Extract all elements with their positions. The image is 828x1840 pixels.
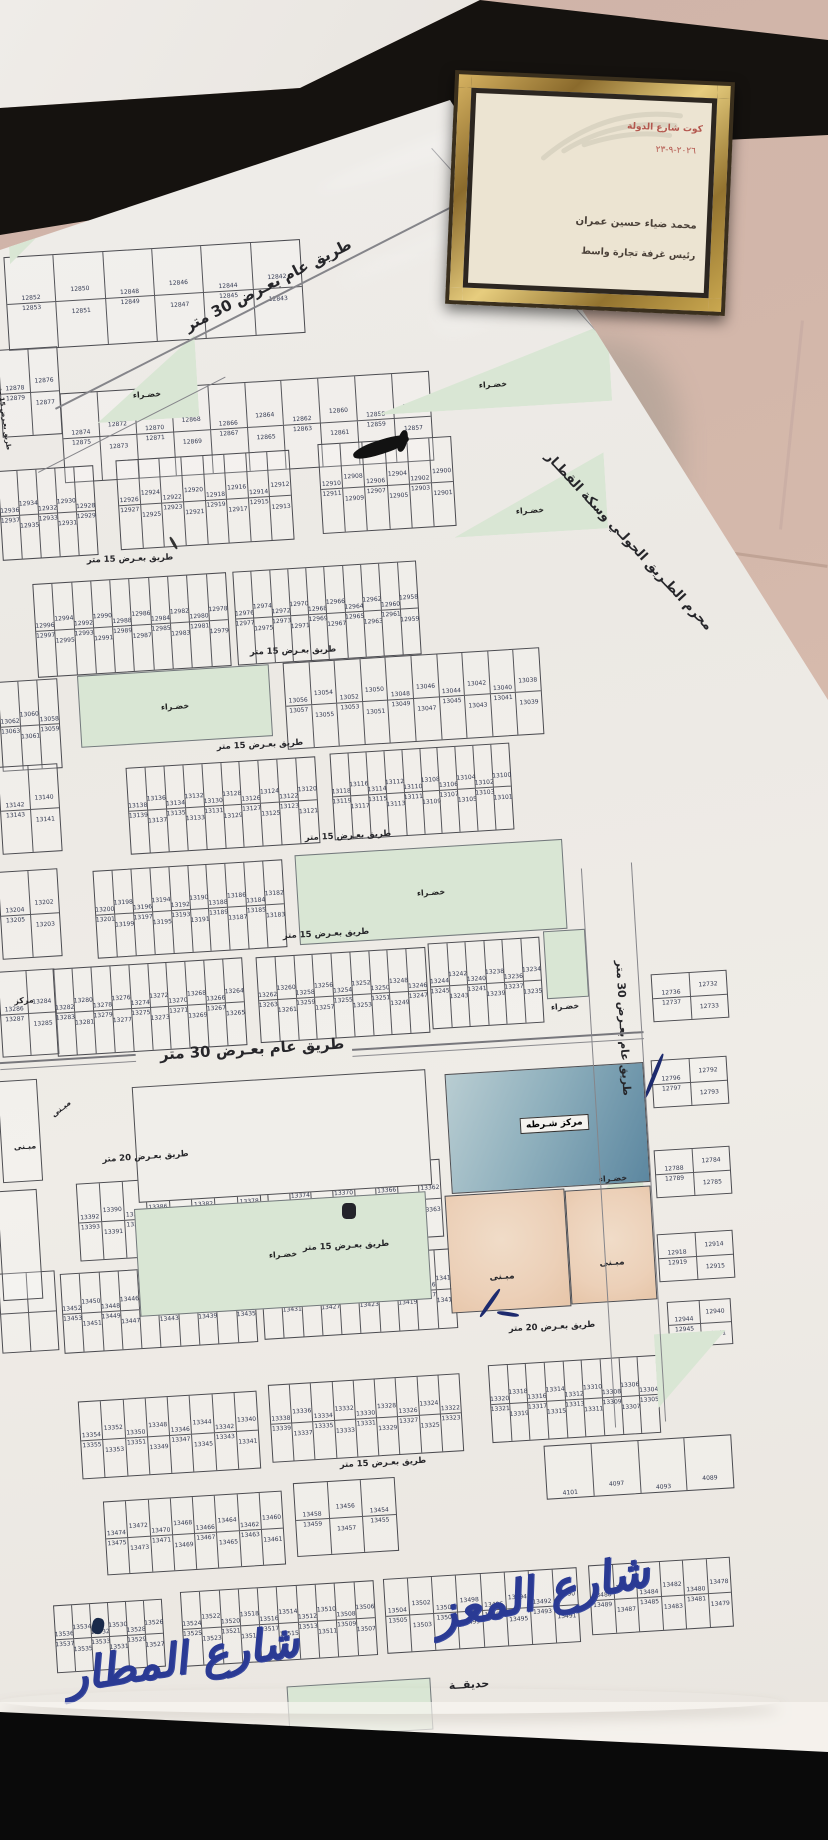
lot-number: 13110 xyxy=(403,783,422,791)
lot-number: 13133 xyxy=(186,814,205,822)
lot-cell: 12852 xyxy=(4,255,55,303)
lot-cell: 13341 xyxy=(236,1430,260,1469)
lot-cell: 12915 xyxy=(696,1254,735,1279)
lot-cell: 13248 xyxy=(387,949,408,992)
lot-number: 12927 xyxy=(120,506,139,514)
lot-cell: 13325 xyxy=(418,1414,441,1453)
lot-cell: 13329 xyxy=(376,1417,399,1456)
lot-number: 13246 xyxy=(408,981,427,989)
lot-number: 13101 xyxy=(493,793,512,801)
lot-number: 13506 xyxy=(355,1603,374,1611)
green-area: خضـراء xyxy=(134,1191,432,1317)
lot-number: 13468 xyxy=(173,1519,192,1527)
lot-number: 13311 xyxy=(584,1405,603,1413)
lot-number: 13055 xyxy=(315,711,334,719)
lot-number: 12969 xyxy=(308,614,327,622)
lot-cell: 13249 xyxy=(389,992,410,1035)
lot-number: 13100 xyxy=(492,772,511,780)
lot-number: 13040 xyxy=(493,684,512,692)
lot-cell: 13273 xyxy=(150,1006,171,1050)
lot-row: 1278912785 xyxy=(656,1169,731,1197)
lot-number: 12976 xyxy=(235,609,254,617)
lot-number: 13183 xyxy=(266,911,285,919)
lot-row: 1314313141 xyxy=(1,807,62,854)
lot-number: 12970 xyxy=(289,600,308,608)
lot-number: 13530 xyxy=(108,1620,127,1628)
lot-number: 13479 xyxy=(711,1599,730,1607)
lot-number: 12869 xyxy=(183,437,202,445)
lot-number: 13042 xyxy=(467,680,486,688)
lot-block-r8c: 1326213260132581325613254132521325013248… xyxy=(256,947,431,1043)
green-area-label: خضـراء xyxy=(417,887,446,898)
lot-number: 13242 xyxy=(448,970,467,978)
lot-cell: 13508 xyxy=(334,1582,355,1619)
lot-cell: 13334 xyxy=(310,1382,333,1421)
lot-number: 13313 xyxy=(565,1400,584,1408)
lot-number: 13043 xyxy=(468,701,487,709)
lot-number: 13235 xyxy=(523,987,542,995)
lot-number: 13502 xyxy=(411,1599,430,1607)
lot-number: 12928 xyxy=(76,502,95,510)
building-block xyxy=(445,1188,572,1313)
lot-number: 12852 xyxy=(21,293,40,301)
lot-cell: 13308 xyxy=(600,1358,621,1397)
lot-number: 13278 xyxy=(93,1001,112,1009)
lot-number: 13448 xyxy=(101,1302,120,1310)
lot-number: 13480 xyxy=(686,1585,705,1593)
lot-number: 13321 xyxy=(491,1404,510,1412)
lot-cell: 13141 xyxy=(30,808,62,852)
lot-number: 12958 xyxy=(399,593,418,601)
lot-cell: 13239 xyxy=(486,982,507,1025)
lot-cell: 13482 xyxy=(658,1561,684,1596)
lot-cell: 12940 xyxy=(698,1299,731,1322)
lot-number: 13054 xyxy=(314,689,333,697)
lot-cell: 13534 xyxy=(71,1604,91,1638)
lot-number: 12936 xyxy=(0,506,19,514)
lot-number: 13045 xyxy=(442,697,461,705)
lot-number: 12960 xyxy=(381,600,400,608)
lot-cell: 13125 xyxy=(260,803,281,846)
lot-cell: 4097 xyxy=(590,1441,640,1496)
lot-cell: 13345 xyxy=(191,1433,215,1472)
lot-cell: 13042 xyxy=(461,651,489,694)
lot-number: 13524 xyxy=(182,1620,201,1628)
lot-cell: 13039 xyxy=(515,691,543,734)
lot-number: 12784 xyxy=(701,1156,720,1164)
lot-number: 12864 xyxy=(255,411,274,419)
lot-number: 13191 xyxy=(190,915,209,923)
lot-number: 13130 xyxy=(204,797,223,805)
green-area-label: خضـراء xyxy=(679,1379,708,1390)
lot-number: 12877 xyxy=(36,398,55,406)
lot-cell: 13194 xyxy=(149,867,170,911)
lot-cell: 13046 xyxy=(410,655,438,698)
lot-cell: 12918 xyxy=(202,455,226,500)
lot-number: 13449 xyxy=(101,1312,120,1320)
lot-cell: 13307 xyxy=(621,1396,642,1435)
lot-cell: 13335 xyxy=(313,1420,336,1459)
lot-number: 13447 xyxy=(121,1317,140,1325)
lot-cell: 13464 xyxy=(214,1494,238,1531)
lot-number: 13143 xyxy=(6,811,25,819)
lot-number: 12871 xyxy=(146,434,165,442)
lot-number: 12850 xyxy=(70,284,89,292)
lot-number: 13487 xyxy=(617,1605,636,1613)
lot-number: 13471 xyxy=(152,1536,171,1544)
lot-cell: 13259 xyxy=(296,997,317,1040)
lot-number: 12935 xyxy=(20,521,39,529)
lot-row: 4101409740934089 xyxy=(545,1435,734,1498)
lot-number: 13135 xyxy=(166,809,185,817)
lot-number: 12934 xyxy=(19,499,38,507)
lot-block-m2: 12796127921279712793 xyxy=(651,1056,730,1109)
lot-cell: 13320 xyxy=(489,1365,509,1404)
lot-number: 13467 xyxy=(196,1533,215,1541)
lot-number: 13103 xyxy=(475,789,494,797)
lot-number: 12993 xyxy=(74,629,93,637)
lot-cell: 13235 xyxy=(522,980,543,1023)
lot-number: 13475 xyxy=(107,1539,126,1547)
lot-number: 13393 xyxy=(81,1223,100,1231)
lot-cell: 13503 xyxy=(409,1614,435,1651)
lot-cell: 13270 xyxy=(166,962,187,1006)
lot-number: 13234 xyxy=(522,965,541,973)
lot-cell: 13450 xyxy=(79,1273,101,1313)
lot-cell: 12846 xyxy=(151,246,203,294)
lot-number: 13526 xyxy=(144,1618,163,1626)
lot-number: 12915 xyxy=(706,1262,725,1270)
lot-number: 13474 xyxy=(107,1529,126,1537)
lot-number: 13328 xyxy=(377,1402,396,1410)
lot-number: 13192 xyxy=(171,901,190,909)
lot-cell: 12978 xyxy=(206,573,228,620)
lot-cell: 13246 xyxy=(406,948,427,991)
lot-cell: 12874 xyxy=(61,392,99,438)
lot-cell: 12788 xyxy=(655,1149,693,1174)
lot-number: 13344 xyxy=(192,1418,211,1426)
lot-cell: 13524 xyxy=(181,1592,201,1629)
lot-block-r3b: 1292612924129221292012918129161291412912… xyxy=(115,450,294,550)
lot-number: 13458 xyxy=(302,1510,321,1518)
lot-number: 12989 xyxy=(113,627,132,635)
lot-number: 13460 xyxy=(262,1513,281,1521)
lot-number: 12919 xyxy=(668,1258,687,1266)
lot-number: 12870 xyxy=(145,424,164,432)
lot-number: 13332 xyxy=(334,1404,353,1412)
lot-cell: 13460 xyxy=(258,1492,282,1529)
lot-cell: 12793 xyxy=(690,1080,729,1105)
lot-number: 13247 xyxy=(409,991,428,999)
lot-cell: 12934 xyxy=(16,470,38,515)
lot-number: 12961 xyxy=(381,610,400,618)
lot-cell: 13250 xyxy=(368,950,389,993)
lot-cell: 13050 xyxy=(359,658,387,701)
lot-number: 12851 xyxy=(72,306,91,314)
lot-number: 13456 xyxy=(336,1502,355,1510)
lot-number: 12920 xyxy=(184,486,203,494)
lot-number: 12996 xyxy=(35,621,54,629)
lot-number: 13283 xyxy=(56,1013,75,1021)
lot-number: 12981 xyxy=(190,622,209,630)
lot-cell: 13449 xyxy=(101,1311,123,1351)
lot-number: 13104 xyxy=(456,774,475,782)
lot-cell: 12866 xyxy=(207,383,246,429)
lot-cell: 13447 xyxy=(120,1310,142,1350)
lot-number: 12963 xyxy=(364,617,383,625)
lot-number: 13308 xyxy=(602,1388,621,1396)
lot-number: 13057 xyxy=(289,706,308,714)
lot-number: 12921 xyxy=(185,508,204,516)
lot-cell: 13473 xyxy=(127,1536,151,1573)
lot-number: 13039 xyxy=(519,698,538,706)
lot-number: 13390 xyxy=(103,1205,122,1213)
lot-number: 13451 xyxy=(82,1319,101,1327)
lot-number: 13462 xyxy=(240,1521,259,1529)
lot-cell: 13324 xyxy=(416,1376,439,1415)
lot-number: 13239 xyxy=(486,989,505,997)
lot-number: 13258 xyxy=(295,988,314,996)
lot-cell: 12848 xyxy=(102,249,154,297)
lot-cell: 13204 xyxy=(0,871,29,915)
lot-cell: 13142 xyxy=(0,766,29,810)
lot-number: 13129 xyxy=(223,812,242,820)
lot-number: 12915 xyxy=(250,498,269,506)
lot-number: 12862 xyxy=(292,415,311,423)
lot-number: 13046 xyxy=(416,683,435,691)
lot-cell: 12958 xyxy=(397,562,418,609)
lot-cell: 13481 xyxy=(684,1594,710,1629)
lot-cell: 13446 xyxy=(118,1270,140,1310)
lot-block-r6a: 1313813136131341313213130131281312613124… xyxy=(126,756,321,854)
lot-cell: 13513 xyxy=(298,1622,319,1659)
lot-cell: 13326 xyxy=(395,1377,418,1416)
lot-cell: 13455 xyxy=(362,1514,398,1551)
lot-cell: 13520 xyxy=(218,1589,239,1626)
lot-block-r7a: 1320013198131961319413192131901318813186… xyxy=(92,859,287,958)
lot-row: 129111290912907129051290312901 xyxy=(321,480,455,532)
lot-number: 12789 xyxy=(665,1174,684,1182)
lot-number: 13453 xyxy=(63,1314,82,1322)
lot-number: 13243 xyxy=(449,992,468,1000)
lot-block-m4: 12918129141291912915 xyxy=(657,1230,736,1283)
lot-number: 13251 xyxy=(371,994,390,1002)
lot-cell: 13352 xyxy=(100,1400,124,1439)
lot-number: 12911 xyxy=(322,489,341,497)
lot-cell: 12915 xyxy=(248,497,272,542)
lot-cell: 13047 xyxy=(413,697,441,740)
lot-number: 13354 xyxy=(82,1431,101,1439)
lot-number: 13508 xyxy=(336,1610,355,1618)
lot-number: 13461 xyxy=(263,1535,282,1543)
lot-cell: 13252 xyxy=(349,951,370,994)
small-ink-mark xyxy=(342,1203,356,1219)
lot-number: 13185 xyxy=(247,906,266,914)
lot-number: 13199 xyxy=(115,920,134,928)
lot-cell: 13451 xyxy=(81,1312,103,1352)
lot-number: 12980 xyxy=(189,612,208,620)
lot-number: 12847 xyxy=(170,300,189,308)
lot-cell: 12901 xyxy=(431,481,456,526)
lot-number: 13331 xyxy=(357,1419,376,1427)
lot-cell: 13321 xyxy=(491,1404,511,1443)
lot-cell: 12922 xyxy=(159,457,183,502)
lot-number: 12901 xyxy=(433,489,452,497)
lot-cell: 13132 xyxy=(182,764,203,807)
lot-cell: 13133 xyxy=(185,807,206,850)
lot-cell: 13316 xyxy=(525,1363,546,1402)
lot-cell: 13304 xyxy=(637,1356,658,1395)
lot-number: 13186 xyxy=(227,891,246,899)
lot-number: 12919 xyxy=(206,500,225,508)
lot-number: 12977 xyxy=(235,619,254,627)
lot-cell: 13054 xyxy=(308,661,336,704)
lot-cell: 13536 xyxy=(54,1605,73,1638)
lot-number: 13518 xyxy=(240,1610,259,1618)
lot-number: 13510 xyxy=(317,1606,336,1614)
lot-row: 1328613284 xyxy=(0,969,56,1014)
lot-block-r6b: 1311813116131141311213110131081310613104… xyxy=(330,743,515,841)
lot-number: 12879 xyxy=(6,394,25,402)
lot-cell: 13040 xyxy=(487,650,515,693)
lot-number: 12861 xyxy=(330,428,349,436)
lot-cell: 13281 xyxy=(74,1011,95,1055)
lot-cell: 13344 xyxy=(189,1394,213,1433)
lot-block-r5L: 130621306013058130631306113059 xyxy=(0,678,63,771)
lot-cell: 13041 xyxy=(490,693,518,736)
lot-cell: 13319 xyxy=(509,1402,530,1441)
lot-number: 13285 xyxy=(33,1019,52,1027)
lot-number: 13119 xyxy=(332,797,351,805)
lot-number: 13304 xyxy=(639,1385,658,1393)
lot-cell: 12912 xyxy=(267,451,291,496)
lot-cell: 12914 xyxy=(694,1231,733,1256)
lot-cell: 4101 xyxy=(545,1444,594,1499)
lot-cell: 12900 xyxy=(428,437,453,482)
lot-cell: 13285 xyxy=(28,1012,58,1055)
lot-cell: 12979 xyxy=(209,620,231,667)
lot-number: 13204 xyxy=(5,906,24,914)
lot-cell: 13310 xyxy=(581,1359,602,1398)
lot-block-b35b: 134581345613454134591345713455 xyxy=(293,1477,399,1557)
lot-number: 13236 xyxy=(504,972,523,980)
lot-number: 13253 xyxy=(353,1001,372,1009)
lot-row: 1328713285 xyxy=(1,1011,58,1057)
lot-number: 13318 xyxy=(508,1387,527,1395)
lot-number: 13194 xyxy=(151,896,170,904)
lot-block-m1: 12736127321273712733 xyxy=(651,970,730,1023)
lot-number: 12972 xyxy=(271,607,290,615)
lot-number: 12849 xyxy=(120,297,139,305)
lot-number: 13309 xyxy=(602,1398,621,1406)
lot-number: 13287 xyxy=(5,1015,24,1023)
lot-cell: 13458 xyxy=(294,1482,329,1519)
lot-cell: 13261 xyxy=(277,998,298,1041)
lot-cell: 13280 xyxy=(71,968,92,1012)
lot-number: 13142 xyxy=(5,801,24,809)
lot-cell: 13286 xyxy=(0,971,28,1014)
lot-cell: 13510 xyxy=(315,1584,336,1621)
lot-number: 12914 xyxy=(704,1240,723,1248)
lot-number: 13050 xyxy=(365,686,384,694)
lot-number: 12913 xyxy=(271,502,290,510)
lot-cell: 13052 xyxy=(334,659,362,702)
lot-cell: 12913 xyxy=(269,495,293,540)
lot-cell: 13350 xyxy=(122,1398,146,1437)
lot-number: 13473 xyxy=(130,1543,149,1551)
lot-number: 13118 xyxy=(332,787,351,795)
lot-number: 13326 xyxy=(398,1406,417,1414)
building-block xyxy=(565,1185,658,1304)
lot-number: 12736 xyxy=(661,988,680,996)
lot-number: 13049 xyxy=(391,700,410,708)
lot-number: 12995 xyxy=(55,636,74,644)
lot-number: 12844 xyxy=(218,281,237,289)
lot-cell: 13457 xyxy=(329,1517,365,1554)
lot-cell: 12849 xyxy=(105,296,157,344)
lot-number: 12904 xyxy=(388,469,407,477)
lot-cell: 12789 xyxy=(656,1173,694,1198)
lot-cell: 13278 xyxy=(90,966,111,1010)
lot-cell: 13128 xyxy=(220,762,241,805)
lot-cell: 13193 xyxy=(171,910,192,954)
lot-number: 12874 xyxy=(71,428,90,436)
lot-number: 13256 xyxy=(314,981,333,989)
lot-number: 13509 xyxy=(337,1620,356,1628)
green-area: خضـراء xyxy=(77,664,273,748)
lot-cell: 12919 xyxy=(659,1257,697,1282)
lot-number: 13305 xyxy=(640,1395,659,1403)
lot-row: 1278812784 xyxy=(655,1147,730,1174)
lot-number: 12962 xyxy=(362,595,381,603)
lot-number: 13455 xyxy=(370,1516,389,1524)
lot-number: 12873 xyxy=(109,442,128,450)
lot-number: 13127 xyxy=(242,805,261,813)
lot-cell: 13317 xyxy=(527,1401,548,1440)
lot-number: 13317 xyxy=(528,1402,547,1410)
lot-number: 12903 xyxy=(411,484,430,492)
lot-number: 12964 xyxy=(344,602,363,610)
lot-number: 13337 xyxy=(293,1429,312,1437)
lot-cell: 13312 xyxy=(562,1361,583,1400)
lot-cell: 12927 xyxy=(119,504,142,549)
lot-number: 13329 xyxy=(378,1424,397,1432)
lot-cell: 13314 xyxy=(544,1362,565,1401)
lot-number: 12966 xyxy=(326,597,345,605)
lot-number: 13446 xyxy=(120,1295,139,1303)
lot-number: 13464 xyxy=(217,1516,236,1524)
lot-number: 13056 xyxy=(288,696,307,704)
lot-number: 13322 xyxy=(441,1404,460,1412)
lot-cell: 13468 xyxy=(170,1497,194,1534)
lot-number: 13314 xyxy=(545,1385,564,1393)
lot-cell: 13472 xyxy=(125,1500,149,1537)
lot-number: 13198 xyxy=(114,898,133,906)
lot-number: 13352 xyxy=(104,1423,123,1431)
lot-number: 13202 xyxy=(34,898,53,906)
lot-cell: 13186 xyxy=(225,863,246,907)
lot-cell: 13462 xyxy=(236,1493,260,1530)
lot-cell: 13051 xyxy=(362,701,390,744)
lot-cell: 12921 xyxy=(183,501,207,546)
lot-number: 12945 xyxy=(675,1325,694,1333)
lot-number: 12902 xyxy=(410,474,429,482)
lot-number: 12860 xyxy=(329,406,348,414)
lot-number: 13454 xyxy=(370,1506,389,1514)
lot-cell: 13509 xyxy=(336,1619,357,1656)
lot-number: 12917 xyxy=(228,505,247,513)
lot-cell: 12732 xyxy=(688,971,727,996)
